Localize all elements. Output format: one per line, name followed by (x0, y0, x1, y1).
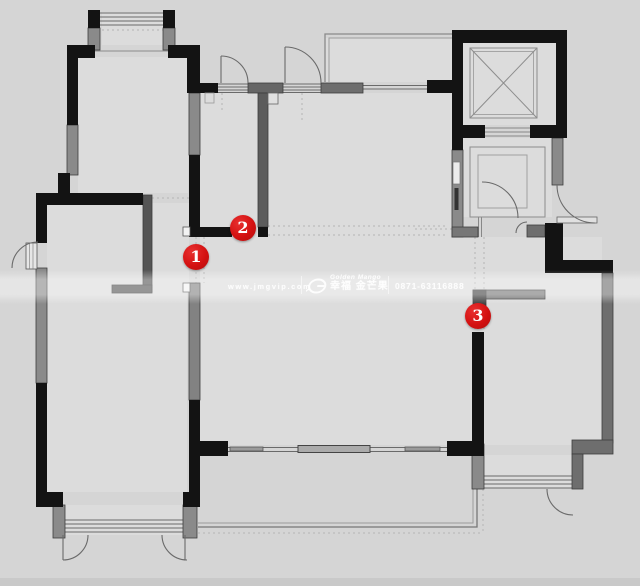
door-top-1 (221, 56, 248, 83)
door-french-left (63, 535, 88, 560)
entry-door (557, 185, 597, 223)
hotspot-marker-1[interactable]: 1 (183, 244, 209, 270)
door-french-right (162, 535, 187, 560)
hotspot-marker-2[interactable]: 2 (230, 215, 256, 241)
floor-plan-screenshot: www.jmgvip.com Golden Mango 幸福 金芒果 0871-… (0, 0, 640, 586)
door-top-2 (285, 47, 321, 83)
bottom-border-strip (0, 578, 640, 586)
floor-plan-drawing (0, 0, 640, 586)
door-left-room (12, 242, 38, 269)
hotspot-marker-3[interactable]: 3 (465, 303, 491, 329)
door-balcony-right (547, 489, 573, 515)
